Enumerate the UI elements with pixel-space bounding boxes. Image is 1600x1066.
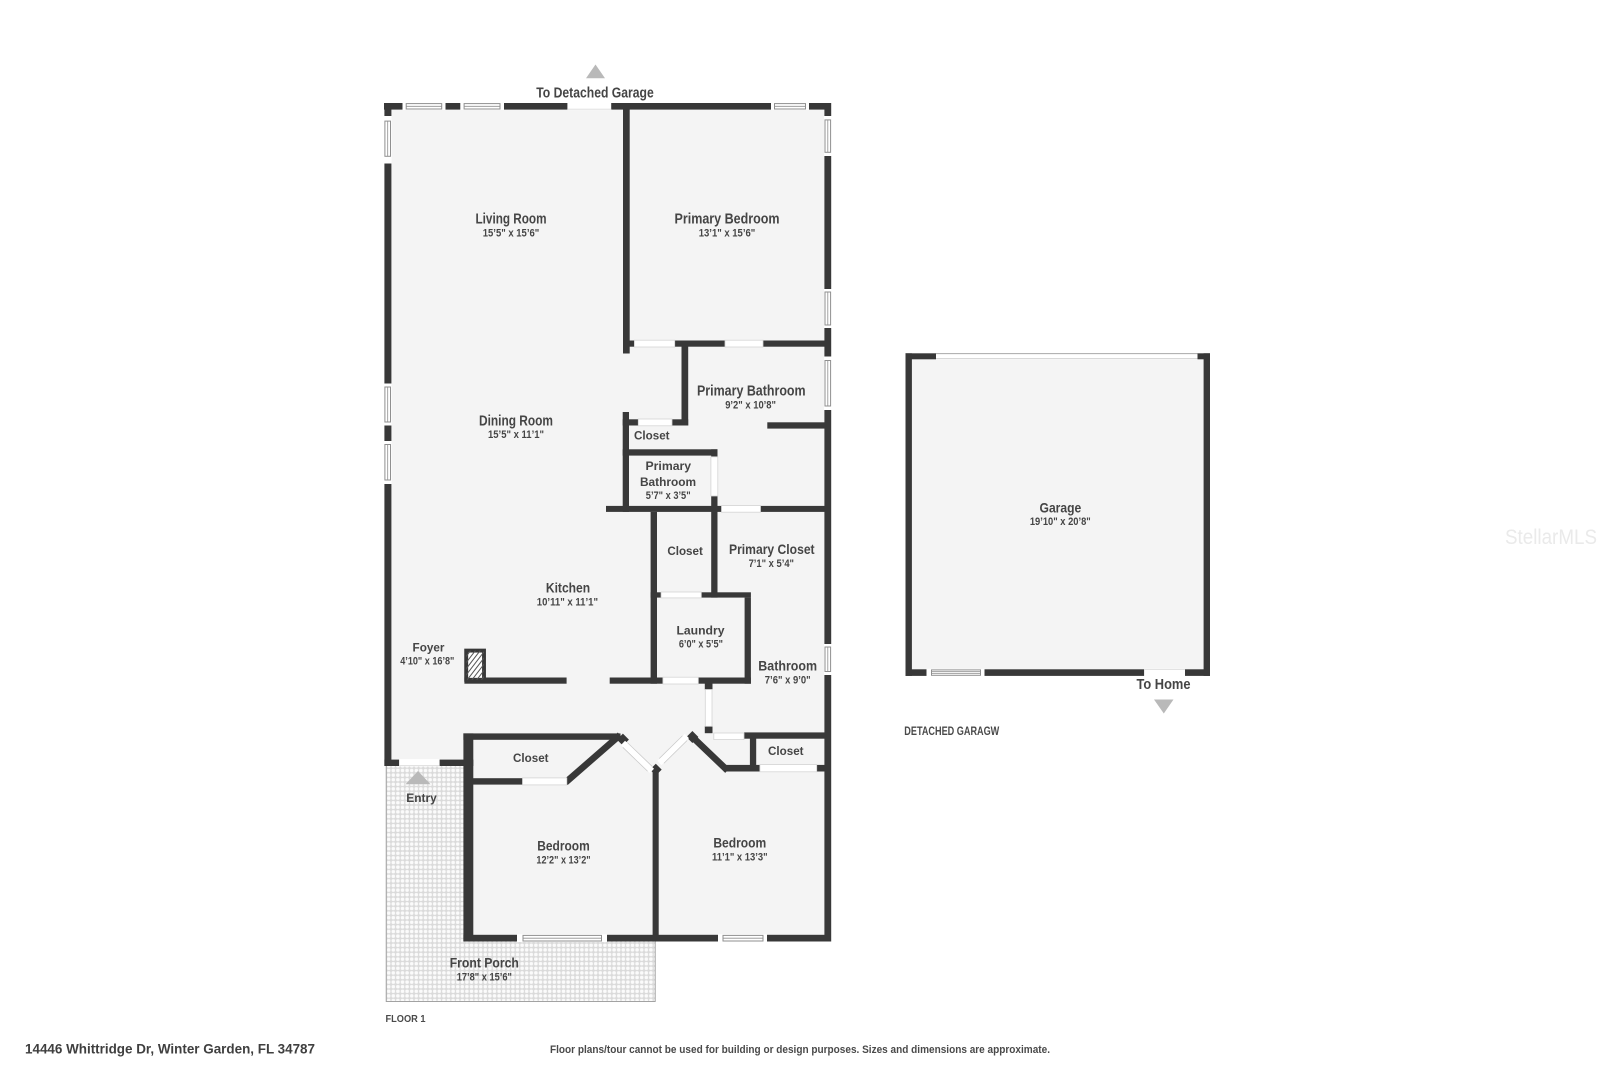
svg-text:To Home: To Home <box>1137 677 1191 693</box>
svg-text:12’2" x 13’2": 12’2" x 13’2" <box>536 855 590 867</box>
svg-text:Primary Bathroom: Primary Bathroom <box>697 384 806 400</box>
svg-text:19’10" x 20’8": 19’10" x 20’8" <box>1030 516 1091 528</box>
svg-text:Living Room: Living Room <box>476 212 547 228</box>
svg-text:Bathroom: Bathroom <box>640 475 696 489</box>
svg-text:10’11" x 11’1": 10’11" x 11’1" <box>537 596 598 608</box>
svg-text:Closet: Closet <box>667 544 703 558</box>
svg-text:Laundry: Laundry <box>676 624 724 638</box>
svg-text:17’8" x 15’6": 17’8" x 15’6" <box>457 971 512 983</box>
svg-text:13’1" x 15’6": 13’1" x 15’6" <box>699 228 756 240</box>
svg-text:4’10" x 16’8": 4’10" x 16’8" <box>400 655 454 667</box>
svg-text:To Detached Garage: To Detached Garage <box>536 85 654 101</box>
svg-text:7’6" x 9’0": 7’6" x 9’0" <box>765 675 811 687</box>
svg-text:DETACHED GARAGW: DETACHED GARAGW <box>904 726 999 738</box>
svg-text:Dining Room: Dining Room <box>479 413 553 429</box>
svg-text:9’2" x 10’8": 9’2" x 10’8" <box>725 400 776 412</box>
svg-text:Closet: Closet <box>768 744 804 758</box>
svg-text:Primary: Primary <box>646 459 692 473</box>
svg-text:5’7" x 3’5": 5’7" x 3’5" <box>646 490 691 502</box>
svg-text:11’1" x 13’3": 11’1" x 13’3" <box>712 851 768 863</box>
svg-text:FLOOR 1: FLOOR 1 <box>386 1014 426 1025</box>
svg-text:Foyer: Foyer <box>413 641 445 655</box>
svg-text:StellarMLS: StellarMLS <box>1505 525 1597 549</box>
svg-text:Front Porch: Front Porch <box>450 956 519 971</box>
svg-text:Floor plans/tour cannot be use: Floor plans/tour cannot be used for buil… <box>550 1044 1050 1056</box>
svg-text:Bedroom: Bedroom <box>537 839 590 854</box>
svg-text:6’0" x 5’5": 6’0" x 5’5" <box>679 639 723 651</box>
svg-text:14446 Whittridge Dr, Winter Ga: 14446 Whittridge Dr, Winter Garden, FL 3… <box>25 1042 315 1058</box>
svg-text:Garage: Garage <box>1040 500 1082 515</box>
svg-text:Closet: Closet <box>513 751 549 765</box>
svg-text:Entry: Entry <box>406 791 437 805</box>
svg-text:15’5" x 11’1": 15’5" x 11’1" <box>488 429 544 441</box>
svg-text:Primary Bedroom: Primary Bedroom <box>675 212 780 228</box>
svg-text:Primary Closet: Primary Closet <box>729 542 815 557</box>
svg-text:15’5" x 15’6": 15’5" x 15’6" <box>483 228 540 240</box>
svg-text:Bathroom: Bathroom <box>758 659 817 674</box>
svg-text:7’1" x 5’4": 7’1" x 5’4" <box>749 558 794 570</box>
svg-text:Closet: Closet <box>634 429 670 443</box>
svg-text:Bedroom: Bedroom <box>713 836 766 851</box>
svg-text:Kitchen: Kitchen <box>546 580 590 595</box>
